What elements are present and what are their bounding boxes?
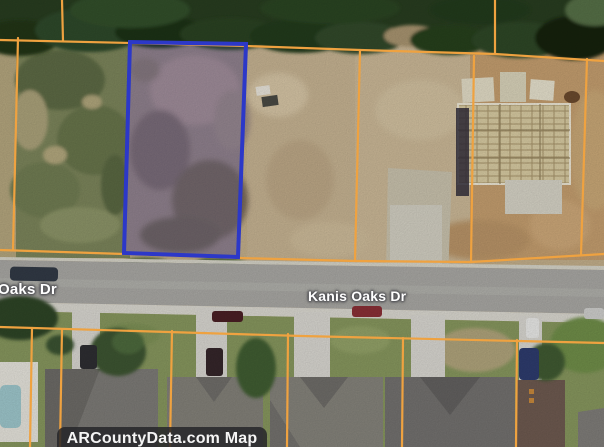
map-viewport[interactable]: Oaks Dr Kanis Oaks Dr ARCountyData.com M… xyxy=(0,0,604,447)
map-attribution-text: ARCountyData.com Map xyxy=(67,430,258,447)
selected-parcel-outline[interactable] xyxy=(124,42,246,257)
grain-overlay xyxy=(0,0,604,447)
aerial-imagery xyxy=(0,0,604,447)
map-attribution-badge: ARCountyData.com Map xyxy=(57,427,267,447)
